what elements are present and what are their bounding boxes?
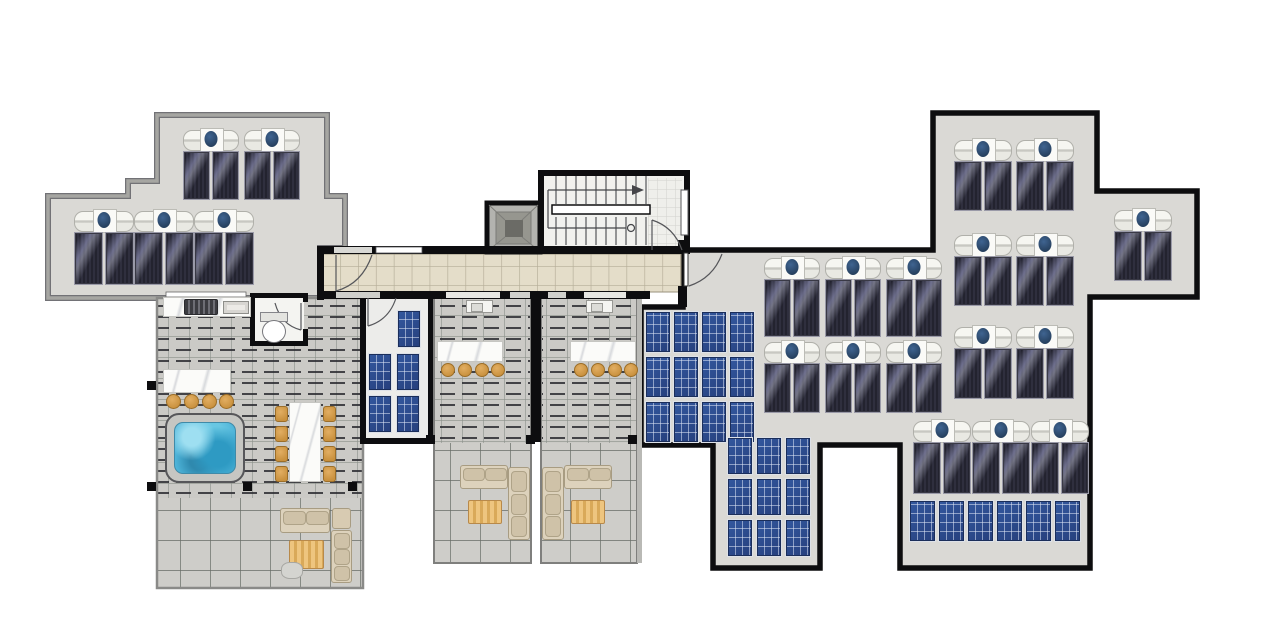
pergola-post <box>147 381 156 390</box>
tank-cap-icon <box>786 343 799 359</box>
dining-chair <box>275 426 288 442</box>
solar-thermal-panel <box>984 256 1012 306</box>
toilet-bowl <box>262 320 286 343</box>
sofa-cushion <box>545 516 561 537</box>
tank-cap-icon <box>977 328 990 344</box>
solar-thermal-panel <box>886 363 913 413</box>
bar-stool <box>166 394 181 409</box>
solar-thermal-panel <box>954 348 982 399</box>
dining-chair <box>323 446 336 462</box>
pv-panel <box>673 356 699 398</box>
pv-panel <box>396 353 420 391</box>
sofa-cushion <box>306 511 329 525</box>
pv-panel <box>396 395 420 433</box>
tank-cap-icon <box>1137 211 1150 227</box>
solar-thermal-panel <box>825 363 852 413</box>
dining-chair <box>275 446 288 462</box>
solar-thermal-panel <box>212 151 239 200</box>
sink-basin <box>471 303 483 312</box>
pv-panel <box>645 401 671 443</box>
solar-thermal-panel <box>984 348 1012 399</box>
pergola-post <box>526 435 535 444</box>
bar-stool <box>184 394 199 409</box>
sofa-cushion <box>545 471 561 492</box>
solar-water-heater-tank <box>825 340 881 362</box>
pv-panel <box>1054 500 1081 542</box>
sofa-cushion <box>463 468 485 481</box>
pergola-post <box>243 482 252 491</box>
sofa-cushion <box>545 494 561 515</box>
pv-panel <box>785 437 811 475</box>
solar-thermal-panel <box>764 279 791 337</box>
solar-thermal-panel <box>764 363 791 413</box>
dining-chair <box>323 426 336 442</box>
pouf <box>281 562 303 579</box>
pv-panel <box>729 311 755 353</box>
wc-toilet <box>260 312 286 342</box>
dining-chair <box>275 466 288 482</box>
jacuzzi-bar-counter <box>163 369 231 393</box>
solar-water-heater-tank <box>183 128 239 150</box>
solar-water-heater-tank <box>244 128 300 150</box>
sofa-corner <box>332 508 351 529</box>
solar-thermal-panel <box>915 279 942 337</box>
bar-stool <box>608 363 622 377</box>
roof-plan-canvas <box>0 0 1269 637</box>
solar-water-heater-tank <box>972 419 1030 441</box>
solar-thermal-panel <box>165 232 194 285</box>
pv-panel <box>368 395 392 433</box>
pergola-post <box>147 482 156 491</box>
terrace-sink <box>586 300 613 313</box>
tank-cap-icon <box>1039 236 1052 252</box>
solar-thermal-panel <box>183 151 210 200</box>
bar-stool <box>458 363 472 377</box>
sofa-cushion <box>511 494 527 515</box>
solar-water-heater-tank <box>954 233 1012 255</box>
sofa-cushion <box>485 468 507 481</box>
tank-cap-icon <box>98 212 111 228</box>
sofa-cushion <box>511 516 527 537</box>
solar-thermal-panel <box>1046 348 1074 399</box>
pv-panel <box>701 311 727 353</box>
tank-cap-icon <box>1039 328 1052 344</box>
tank-cap-icon <box>847 343 860 359</box>
solar-water-heater-tank <box>1031 419 1089 441</box>
sink-basin <box>591 303 603 312</box>
solar-water-heater-tank <box>1016 138 1074 160</box>
pv-panel <box>645 356 671 398</box>
solar-thermal-panel <box>1016 348 1044 399</box>
solar-thermal-panel <box>943 442 971 494</box>
pv-panel <box>785 519 811 557</box>
bar-stool <box>574 363 588 377</box>
solar-thermal-panel <box>273 151 300 200</box>
sofa <box>542 467 564 540</box>
tank-cap-icon <box>205 131 218 147</box>
bar-stool <box>219 394 234 409</box>
equipment-furniture-layer <box>0 0 1269 637</box>
pv-panel <box>368 353 392 391</box>
solar-water-heater-tank <box>1016 325 1074 347</box>
pv-panel <box>967 500 994 542</box>
solar-water-heater-tank <box>1016 233 1074 255</box>
pv-panel <box>673 311 699 353</box>
pv-panel <box>727 519 753 557</box>
solar-water-heater-tank <box>74 209 134 231</box>
sofa <box>508 467 530 540</box>
pv-panel <box>909 500 936 542</box>
pv-panel <box>785 478 811 516</box>
pv-panel <box>727 478 753 516</box>
solar-thermal-panel <box>793 279 820 337</box>
pv-panel <box>1025 500 1052 542</box>
tank-cap-icon <box>218 212 231 228</box>
dining-table <box>289 402 321 482</box>
tank-cap-icon <box>266 131 279 147</box>
pv-panel <box>938 500 965 542</box>
dining-chair <box>275 406 288 422</box>
rattan-coffee-table <box>571 500 605 524</box>
tank-cap-icon <box>977 236 990 252</box>
solar-water-heater-tank <box>1114 208 1172 230</box>
solar-thermal-panel <box>1046 161 1074 211</box>
solar-thermal-panel <box>972 442 1000 494</box>
terrace-bar-counter <box>570 341 636 362</box>
pv-panel <box>756 478 782 516</box>
kitchen-sink <box>223 301 249 314</box>
sofa-cushion <box>283 511 306 525</box>
dining-chair <box>323 406 336 422</box>
pv-panel <box>673 401 699 443</box>
sofa <box>564 465 612 489</box>
bar-stool <box>441 363 455 377</box>
pergola-post <box>426 435 435 444</box>
tank-cap-icon <box>936 422 949 438</box>
sofa <box>460 465 508 489</box>
bbq-grill <box>184 299 218 315</box>
sofa <box>280 508 330 533</box>
solar-thermal-panel <box>1031 442 1059 494</box>
pergola-post <box>348 482 357 491</box>
sofa-cushion <box>589 468 611 481</box>
tank-cap-icon <box>1054 422 1067 438</box>
pv-panel <box>645 311 671 353</box>
sofa <box>331 530 352 583</box>
solar-thermal-panel <box>1016 161 1044 211</box>
bar-stool <box>491 363 505 377</box>
tank-cap-icon <box>786 259 799 275</box>
solar-water-heater-tank <box>954 138 1012 160</box>
solar-thermal-panel <box>225 232 254 285</box>
solar-water-heater-tank <box>886 256 942 278</box>
tank-cap-icon <box>908 343 921 359</box>
solar-water-heater-tank <box>825 256 881 278</box>
pergola-post <box>628 435 637 444</box>
pv-panel <box>397 310 421 348</box>
pv-panel <box>756 519 782 557</box>
solar-thermal-panel <box>915 363 942 413</box>
solar-thermal-panel <box>825 279 852 337</box>
tank-cap-icon <box>995 422 1008 438</box>
terrace-bar-counter <box>437 341 503 362</box>
solar-thermal-panel <box>194 232 223 285</box>
solar-thermal-panel <box>1114 231 1142 281</box>
solar-water-heater-tank <box>134 209 194 231</box>
dining-chair <box>323 466 336 482</box>
bar-stool <box>202 394 217 409</box>
tank-cap-icon <box>977 141 990 157</box>
pv-panel <box>701 401 727 443</box>
solar-thermal-panel <box>134 232 163 285</box>
sofa-cushion <box>334 533 349 549</box>
solar-thermal-panel <box>1002 442 1030 494</box>
solar-thermal-panel <box>74 232 103 285</box>
pv-panel <box>727 437 753 475</box>
solar-thermal-panel <box>886 279 913 337</box>
solar-water-heater-tank <box>886 340 942 362</box>
solar-thermal-panel <box>954 256 982 306</box>
solar-thermal-panel <box>913 442 941 494</box>
rattan-coffee-table <box>468 500 502 524</box>
sofa-cushion <box>334 549 349 565</box>
solar-thermal-panel <box>105 232 134 285</box>
sofa-cushion <box>334 566 349 582</box>
jacuzzi-water <box>174 422 236 474</box>
terrace-sink <box>466 300 493 313</box>
solar-water-heater-tank <box>194 209 254 231</box>
solar-thermal-panel <box>1144 231 1172 281</box>
pv-panel <box>756 437 782 475</box>
solar-thermal-panel <box>984 161 1012 211</box>
solar-thermal-panel <box>1061 442 1089 494</box>
tank-cap-icon <box>1039 141 1052 157</box>
sofa-cushion <box>567 468 589 481</box>
bar-stool <box>475 363 489 377</box>
solar-water-heater-tank <box>913 419 971 441</box>
pv-panel <box>996 500 1023 542</box>
tank-cap-icon <box>908 259 921 275</box>
pv-panel <box>701 356 727 398</box>
jacuzzi-hot-tub <box>165 413 245 483</box>
solar-water-heater-tank <box>764 340 820 362</box>
solar-thermal-panel <box>1046 256 1074 306</box>
bar-stool <box>591 363 605 377</box>
sofa-cushion <box>511 471 527 492</box>
solar-thermal-panel <box>854 279 881 337</box>
solar-water-heater-tank <box>764 256 820 278</box>
solar-thermal-panel <box>1016 256 1044 306</box>
solar-thermal-panel <box>854 363 881 413</box>
solar-thermal-panel <box>793 363 820 413</box>
tank-cap-icon <box>158 212 171 228</box>
bar-stool <box>624 363 638 377</box>
solar-water-heater-tank <box>954 325 1012 347</box>
solar-thermal-panel <box>954 161 982 211</box>
solar-thermal-panel <box>244 151 271 200</box>
pv-panel <box>729 356 755 398</box>
tank-cap-icon <box>847 259 860 275</box>
